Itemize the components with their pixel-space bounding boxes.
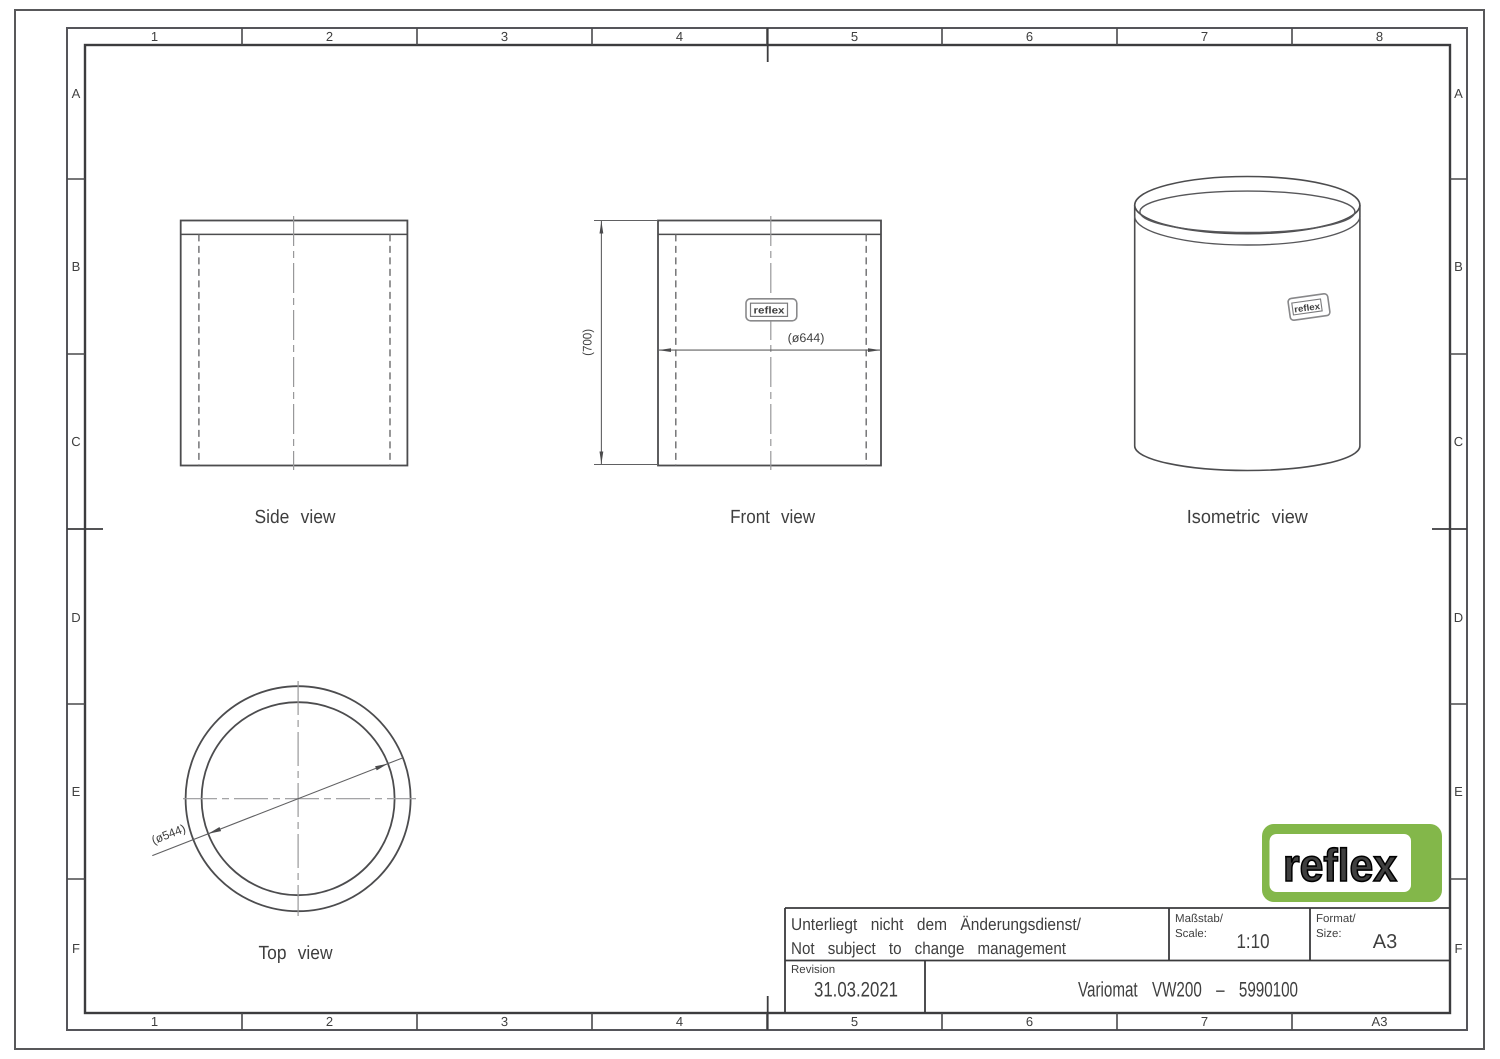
svg-text:A: A: [1454, 86, 1463, 101]
svg-text:2: 2: [326, 1014, 333, 1029]
svg-text:Size:: Size:: [1316, 928, 1342, 940]
svg-text:Side view: Side view: [255, 507, 336, 528]
svg-text:F: F: [1455, 941, 1463, 956]
svg-text:5: 5: [851, 29, 858, 44]
svg-text:A3: A3: [1372, 1014, 1388, 1029]
svg-text:A: A: [72, 86, 81, 101]
svg-text:Maßstab/: Maßstab/: [1175, 913, 1224, 925]
svg-text:Variomat VW200 – 5990100: Variomat VW200 – 5990100: [1078, 979, 1298, 1002]
svg-text:1:10: 1:10: [1237, 931, 1270, 953]
svg-text:Format/: Format/: [1316, 913, 1356, 925]
svg-text:7: 7: [1201, 1014, 1208, 1029]
svg-text:1: 1: [151, 1014, 158, 1029]
svg-text:(ø644): (ø644): [788, 331, 825, 345]
svg-text:31.03.2021: 31.03.2021: [814, 979, 898, 1002]
svg-text:reflex: reflex: [1283, 839, 1397, 891]
svg-text:B: B: [72, 259, 81, 274]
svg-text:7: 7: [1201, 29, 1208, 44]
svg-text:A3: A3: [1373, 931, 1397, 953]
svg-text:3: 3: [501, 1014, 508, 1029]
svg-text:C: C: [1454, 434, 1463, 449]
svg-text:(700): (700): [581, 329, 595, 356]
svg-text:6: 6: [1026, 29, 1033, 44]
svg-text:C: C: [71, 434, 80, 449]
svg-text:Front view: Front view: [730, 507, 815, 528]
svg-text:E: E: [72, 784, 81, 799]
svg-text:B: B: [1454, 259, 1463, 274]
svg-text:D: D: [1454, 610, 1463, 625]
svg-text:5: 5: [851, 1014, 858, 1029]
svg-text:8: 8: [1376, 29, 1383, 44]
svg-text:4: 4: [676, 29, 683, 44]
svg-text:2: 2: [326, 29, 333, 44]
svg-text:6: 6: [1026, 1014, 1033, 1029]
svg-text:Not subject to change manageme: Not subject to change management: [791, 939, 1066, 958]
svg-text:4: 4: [676, 1014, 683, 1029]
svg-text:Scale:: Scale:: [1175, 928, 1207, 940]
svg-text:F: F: [72, 941, 80, 956]
svg-text:Revision: Revision: [791, 964, 835, 976]
svg-text:Top view: Top view: [259, 943, 333, 964]
svg-text:Unterliegt nicht dem Änderungs: Unterliegt nicht dem Änderungsdienst/: [791, 915, 1081, 934]
svg-text:D: D: [71, 610, 80, 625]
svg-text:3: 3: [501, 29, 508, 44]
svg-text:reflex: reflex: [754, 306, 786, 317]
svg-text:Isometric view: Isometric view: [1187, 507, 1308, 528]
svg-text:E: E: [1454, 784, 1463, 799]
svg-text:1: 1: [151, 29, 158, 44]
